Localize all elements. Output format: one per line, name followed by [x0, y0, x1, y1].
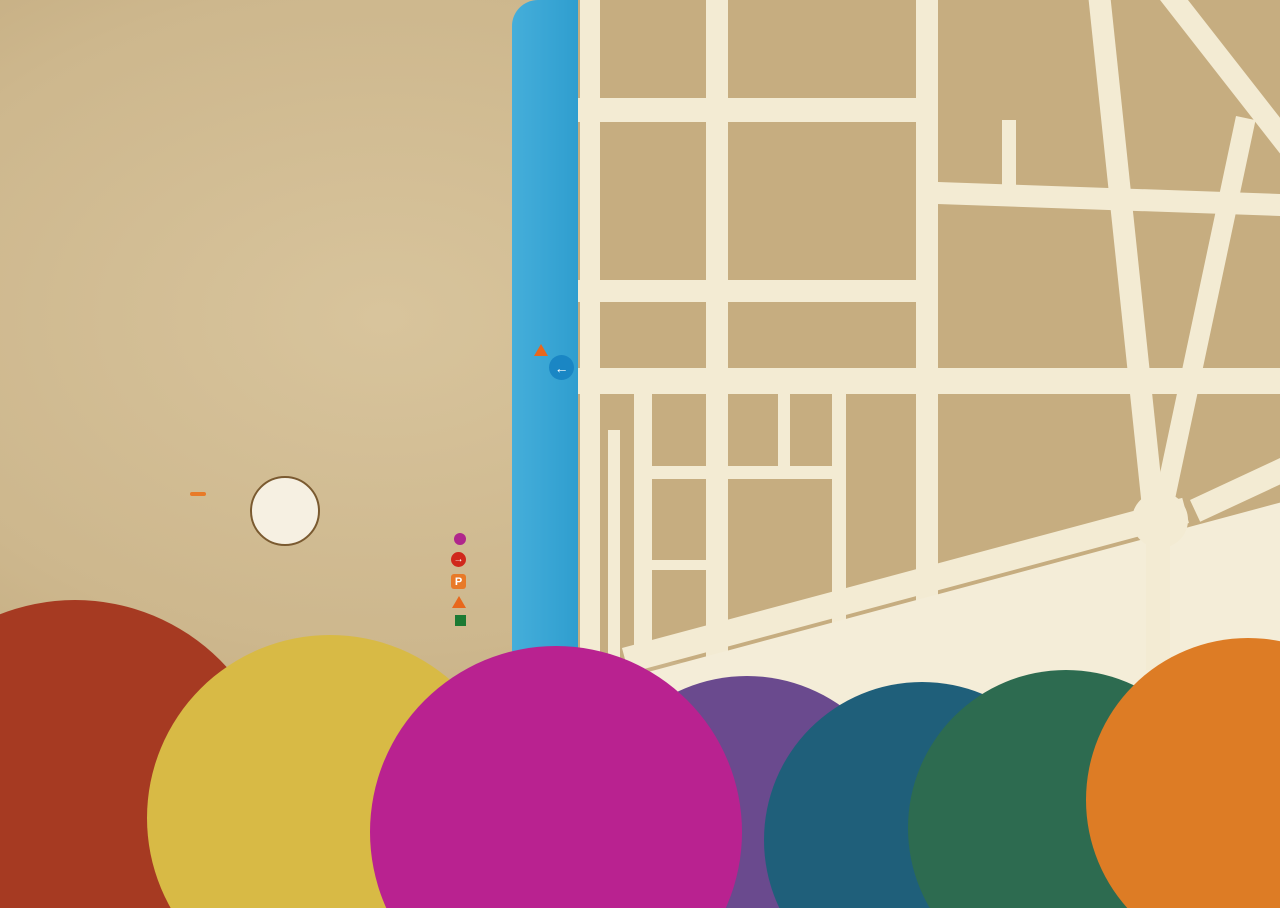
road: [778, 394, 790, 470]
roundabout: [1132, 492, 1188, 548]
house-heyicheng: [1158, 638, 1280, 641]
road: [650, 560, 708, 570]
generation-house-dot-icon: [454, 533, 466, 545]
road: [608, 430, 620, 662]
house-xiaoyicheng: [18, 606, 238, 609]
legend-row: →: [451, 552, 472, 567]
house-minyicheng: [230, 636, 430, 639]
house-zhongyicheng: [428, 656, 688, 659]
mrt-arrow-icon: →: [451, 552, 466, 567]
legend-row: [455, 615, 472, 626]
road: [648, 466, 838, 479]
house-xueyicheng: [680, 672, 815, 675]
house-lianyicheng: [848, 670, 1038, 673]
road: [634, 372, 652, 662]
legend-row: P: [451, 574, 472, 589]
parking-icon: P: [451, 574, 466, 589]
map-legend: → P: [330, 533, 472, 626]
road: [578, 280, 918, 302]
legend-row: [452, 596, 472, 608]
legend-row: [454, 533, 472, 545]
road: [578, 368, 1280, 394]
road: [578, 98, 932, 122]
featured-shop-square-icon: [455, 615, 466, 626]
landmark-triangle-icon: [452, 596, 466, 608]
uns-studio-logo: [250, 476, 320, 546]
character-illustration: [330, 12, 540, 442]
design-label: [190, 492, 206, 496]
dadaocheng-1920s-map-poster: ← → P: [0, 0, 1280, 908]
wharf-direction-arrow-icon: ←: [549, 355, 574, 380]
house-qingyicheng: [998, 664, 1148, 667]
